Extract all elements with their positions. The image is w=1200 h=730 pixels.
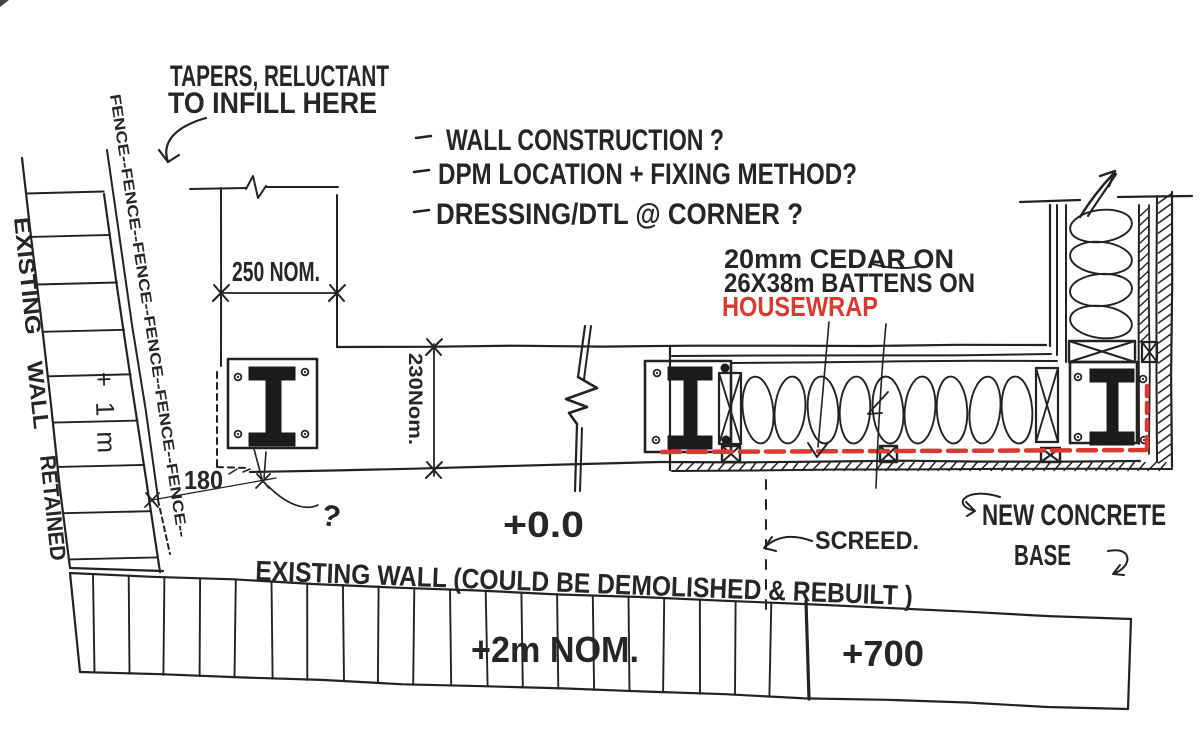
svg-text:+700: +700 [842,633,924,674]
svg-text:SCREED.: SCREED. [815,527,919,555]
svg-text:BASE: BASE [1014,540,1071,572]
svg-text:NEW CONCRETE: NEW CONCRETE [982,499,1166,532]
svg-text:TO INFILL HERE: TO INFILL HERE [168,87,377,120]
svg-text:26X38m BATTENS ON: 26X38m BATTENS ON [724,268,975,298]
svg-text:+1m: +1m [89,371,122,468]
svg-text:230Nom.: 230Nom. [404,353,425,445]
svg-text:180: 180 [184,465,223,495]
svg-text:DPM LOCATION + FIXING METHOD?: DPM LOCATION + FIXING METHOD? [438,158,857,191]
svg-text:250 NOM.: 250 NOM. [232,256,320,287]
svg-text:+0.0: +0.0 [503,504,584,545]
svg-text:+2m NOM.: +2m NOM. [471,629,639,670]
svg-text:DRESSING/DTL @ CORNER ?: DRESSING/DTL @ CORNER ? [436,198,803,231]
svg-text:WALL CONSTRUCTION ?: WALL CONSTRUCTION ? [446,124,724,157]
